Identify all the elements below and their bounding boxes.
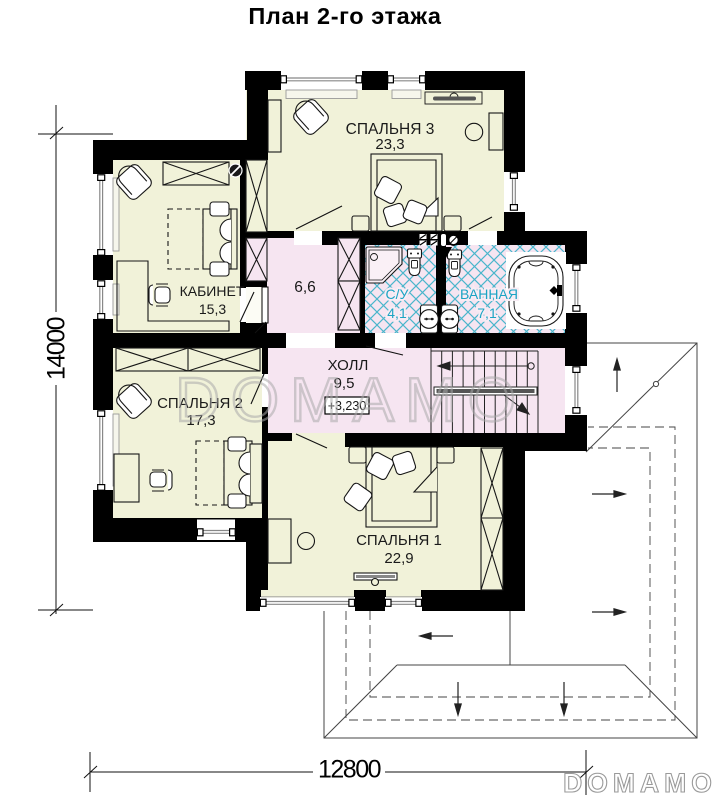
svg-text:DOMAMO: DOMAMO [563, 768, 717, 798]
svg-text:12800: 12800 [318, 756, 381, 784]
svg-text:СПАЛЬНЯ 1: СПАЛЬНЯ 1 [356, 532, 442, 549]
svg-text:7,1: 7,1 [477, 305, 497, 321]
svg-text:6,6: 6,6 [294, 279, 316, 296]
svg-text:14000: 14000 [43, 317, 71, 380]
svg-text:КАБИНЕТ: КАБИНЕТ [180, 283, 245, 299]
svg-text:22,9: 22,9 [384, 550, 413, 567]
svg-text:15,3: 15,3 [199, 301, 226, 317]
svg-text:4,1: 4,1 [387, 305, 407, 321]
svg-text:План 2-го этажа: План 2-го этажа [248, 3, 441, 29]
svg-text:С/У: С/У [386, 286, 409, 302]
svg-text:ВАННАЯ: ВАННАЯ [460, 286, 518, 302]
svg-text:DОМАМО: DОМАМО [175, 366, 527, 435]
svg-text:23,3: 23,3 [375, 136, 404, 153]
